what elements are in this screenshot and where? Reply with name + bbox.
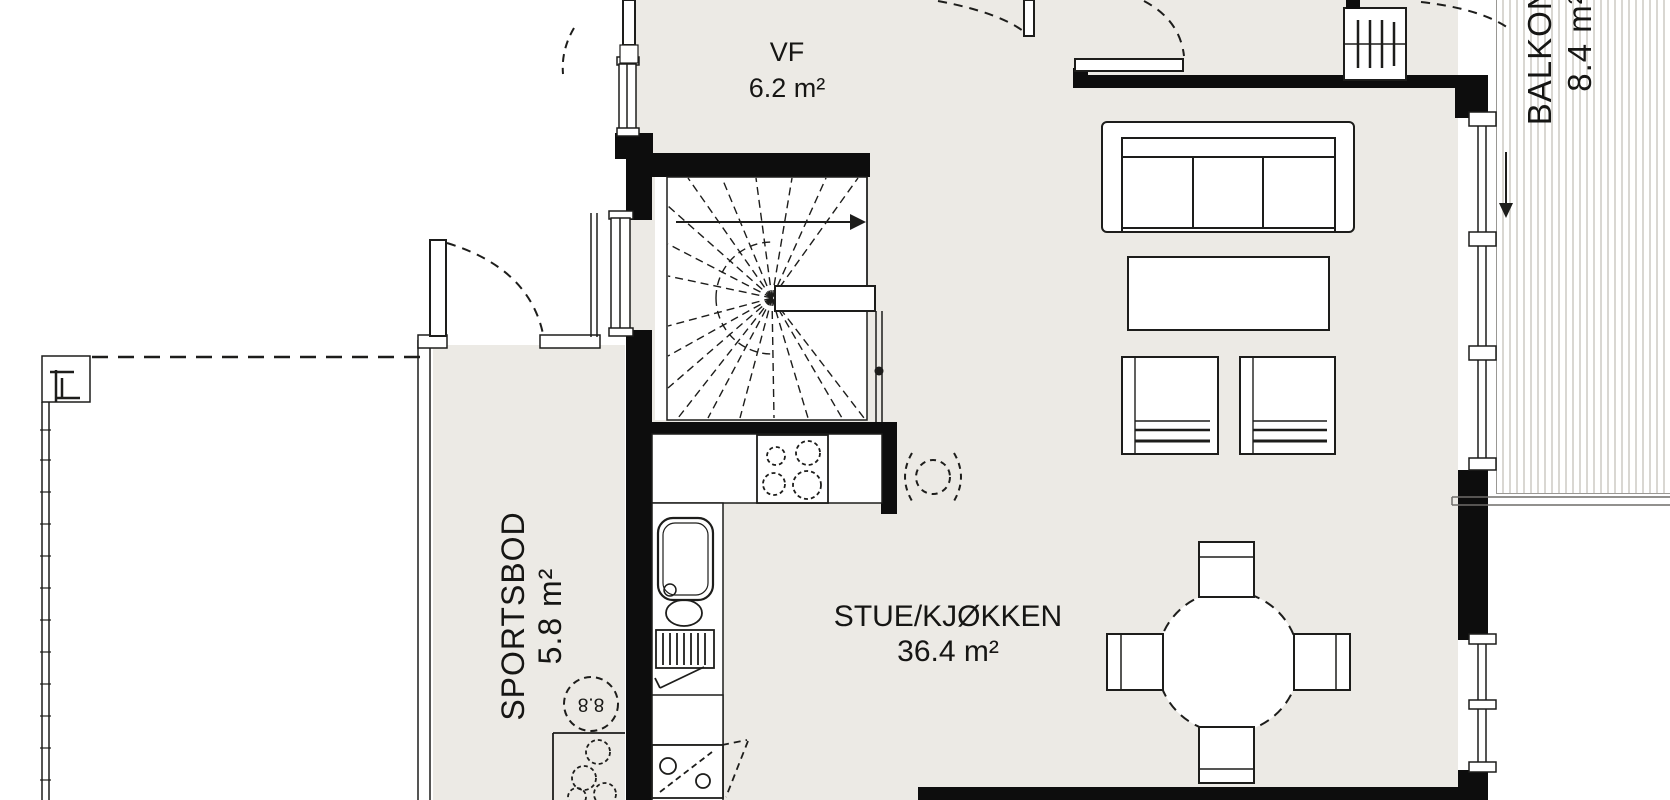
floorplan-canvas: VF 6.2 m² SPORTSBOD 5.8 m² STUE/KJØKKEN … [0, 0, 1670, 800]
stair-landing [775, 286, 875, 311]
room-area: 8.4 m² [1560, 0, 1600, 125]
room-name: SPORTSBOD [495, 511, 532, 720]
dining-table [1157, 591, 1299, 733]
room-area: 5.8 m² [532, 511, 569, 720]
wood-stove [1344, 0, 1406, 80]
window-vf-west [617, 57, 639, 136]
dining-chair-bottom [1199, 727, 1254, 783]
plan-linework [0, 0, 1670, 800]
terrace-outline [40, 356, 420, 800]
door-hall [938, 0, 1034, 36]
armchair-left [1122, 357, 1218, 454]
door-balcony [1421, 2, 1511, 30]
window-east-upper [1469, 112, 1496, 470]
dining-chair-right [1294, 634, 1350, 690]
room-label-stue-kjokken: STUE/KJØKKEN 36.4 m² [834, 599, 1062, 669]
window-east-lower [1469, 634, 1496, 772]
cabinet-swing-dashes [722, 740, 748, 797]
dining-set [1107, 542, 1350, 783]
kitchen-cabinet [652, 695, 723, 745]
dining-chair-left [1107, 634, 1163, 690]
room-area: 36.4 m² [834, 634, 1062, 669]
sportsbod-door [430, 240, 543, 336]
room-name: VF [749, 34, 826, 70]
room-name: STUE/KJØKKEN [834, 599, 1062, 634]
door-vf-left [563, 0, 638, 74]
dishwasher [652, 745, 723, 798]
staircase [655, 177, 897, 438]
door-living [1075, 1, 1184, 71]
window-stair-west [609, 211, 633, 336]
room-area: 6.2 m² [749, 70, 826, 106]
sofa [1102, 122, 1354, 232]
water-heater-value: 8.8 [578, 694, 604, 715]
room-name: BALKONG [1520, 0, 1560, 125]
room-label-balkong: BALKONG 8.4 m² [1520, 0, 1600, 125]
armchair-right [1240, 357, 1335, 454]
room-label-sportsbod: SPORTSBOD 5.8 m² [495, 511, 569, 720]
balcony-arrow-icon [1499, 152, 1513, 218]
sportsbod-unit [553, 733, 625, 800]
cooktop [757, 435, 828, 503]
room-label-vf: VF 6.2 m² [749, 34, 826, 106]
dining-chair-top [1199, 542, 1254, 597]
water-heater-label: 8.8 [578, 695, 604, 714]
chimney-symbol [905, 453, 961, 501]
coffee-table [1128, 257, 1329, 330]
